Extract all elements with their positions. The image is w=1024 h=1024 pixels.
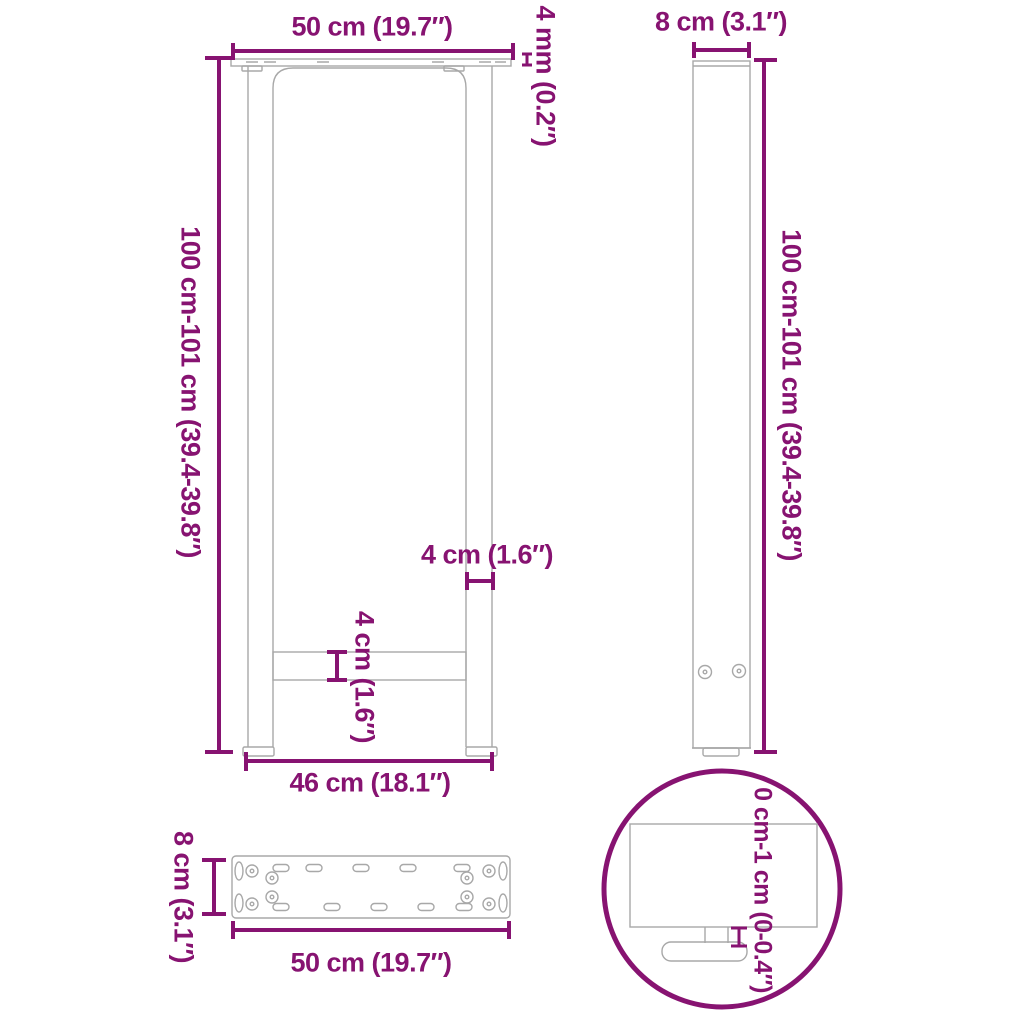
front-leg-width-label: 4 cm (1.6″) <box>421 542 553 569</box>
detail-adjustable-range-label: 0 cm-1 cm (0-0.4″) <box>750 787 775 993</box>
plate-depth-label: 8 cm (3.1″) <box>170 831 197 963</box>
detail-foot-stem <box>705 927 728 943</box>
detail-circle-drawing <box>604 771 840 1007</box>
detail-range-dim-line <box>731 928 747 946</box>
detail-circle-outline <box>604 771 840 1007</box>
side-screw-left <box>699 666 712 679</box>
front-plate-thickness-label: 4 mm (0.2″) <box>532 6 559 147</box>
plate-slots-bottom-row <box>273 904 472 911</box>
detail-leg-bottom <box>630 824 817 927</box>
front-crossbar-height-label: 4 cm (1.6″) <box>351 611 378 743</box>
plate-top-view-drawing <box>232 856 510 918</box>
plate-end-slot <box>235 862 243 880</box>
front-height-label: 100 cm-101 cm (39.4-39.8″) <box>177 226 204 558</box>
side-leg-outline <box>693 61 750 748</box>
front-crossbar-height-dim-line <box>327 652 347 680</box>
plate-end-slot <box>235 894 243 912</box>
side-foot <box>703 748 739 756</box>
front-plate-tab-left <box>242 66 262 71</box>
plate-end-slot <box>499 894 507 912</box>
plate-slots-top-row <box>273 865 470 872</box>
front-height-dim-line <box>205 57 233 753</box>
front-top-width-dim-line <box>233 43 513 60</box>
side-height-dim-line <box>754 60 777 752</box>
side-depth-dim-line <box>694 42 749 58</box>
front-leg-width-dim-line <box>467 572 493 590</box>
side-height-label: 100 cm-101 cm (39.4-39.8″) <box>778 229 805 561</box>
side-view-drawing <box>692 61 751 756</box>
front-bottom-width-label: 46 cm (18.1″) <box>289 770 450 797</box>
side-depth-label: 8 cm (3.1″) <box>655 9 787 36</box>
plate-width-dim-line <box>233 921 509 939</box>
side-view-dimensions <box>694 42 777 752</box>
plate-end-slot <box>499 862 507 880</box>
side-screw-left-center <box>703 670 707 674</box>
side-screw-right-center <box>737 669 741 673</box>
diagram-line-art <box>0 0 1024 1024</box>
plate-depth-dim-line <box>202 860 226 914</box>
plate-width-label: 50 cm (19.7″) <box>290 950 451 977</box>
product-dimension-diagram: 50 cm (19.7″) 4 mm (0.2″) 100 cm-101 cm … <box>0 0 1024 1024</box>
front-top-width-label: 50 cm (19.7″) <box>291 14 452 41</box>
side-screw-right <box>733 665 746 678</box>
